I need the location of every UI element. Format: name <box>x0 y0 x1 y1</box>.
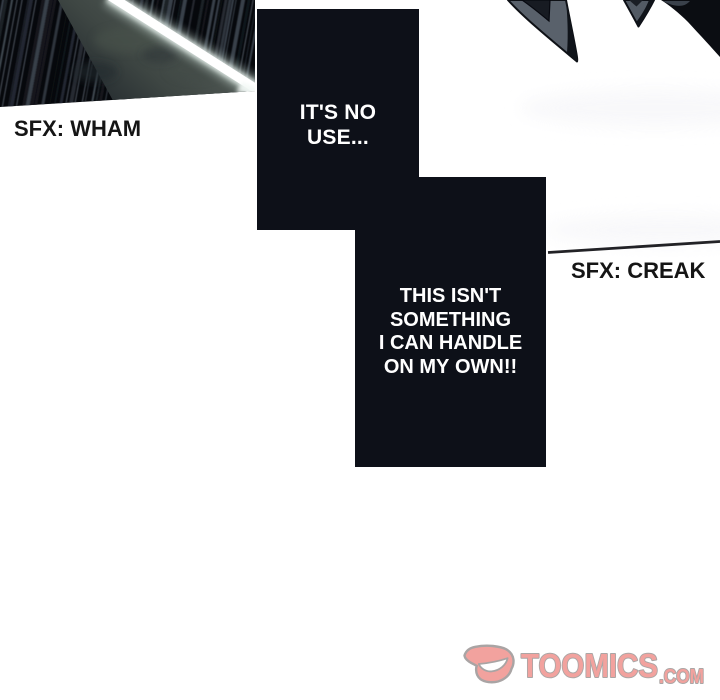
svg-text:TOOMICS: TOOMICS <box>521 647 658 684</box>
svg-text:.COM: .COM <box>659 666 704 688</box>
